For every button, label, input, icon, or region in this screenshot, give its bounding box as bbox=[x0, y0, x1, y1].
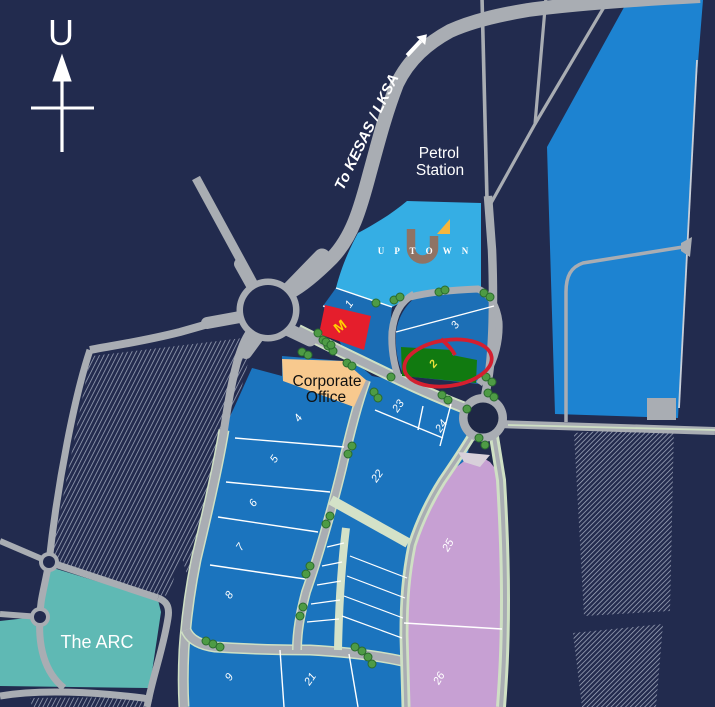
svg-text:U P T O W N: U P T O W N bbox=[378, 246, 473, 256]
svg-text:Petrol: Petrol bbox=[419, 145, 460, 162]
svg-text:Station: Station bbox=[416, 162, 464, 179]
svg-text:Corporate: Corporate bbox=[293, 373, 362, 390]
svg-text:Office: Office bbox=[306, 389, 346, 406]
svg-text:U: U bbox=[48, 12, 74, 53]
svg-text:The ARC: The ARC bbox=[60, 632, 133, 652]
